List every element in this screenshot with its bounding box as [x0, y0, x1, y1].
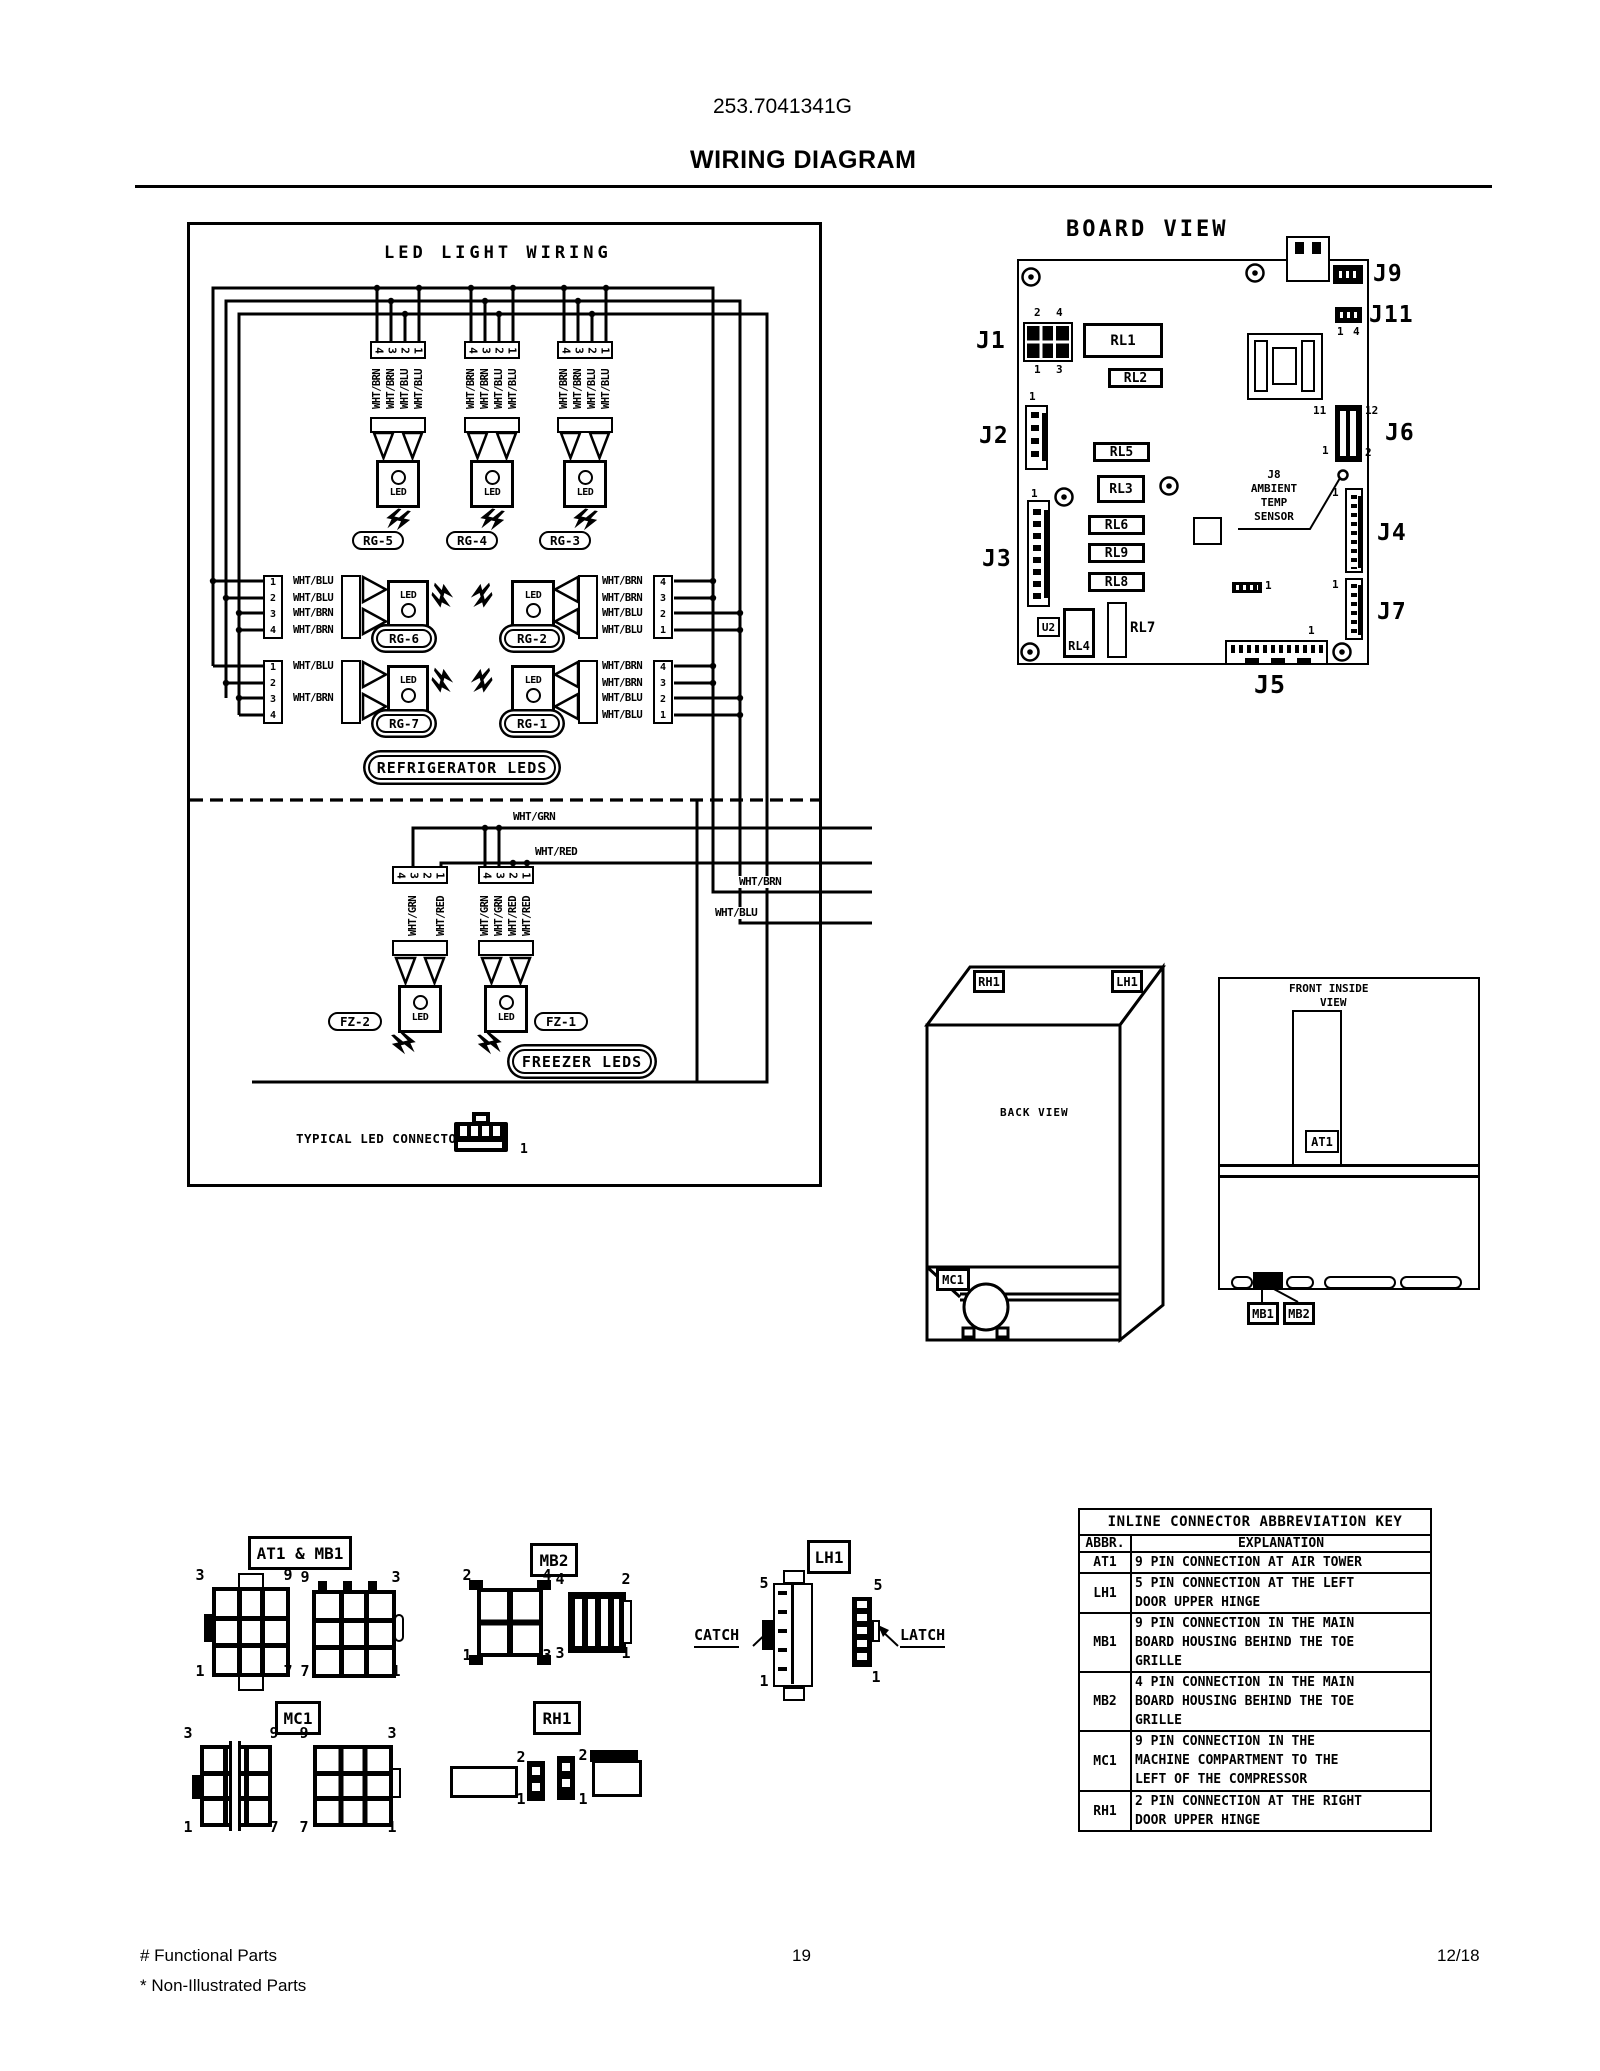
pin-number: 5: [756, 1574, 772, 1592]
at1-location-label: AT1: [1305, 1130, 1339, 1153]
rg2-connector-bar: [578, 575, 598, 639]
connector-tab: [783, 1687, 805, 1701]
wire-label: WHT/BLU: [493, 369, 505, 409]
front-inside-view-outline: [1218, 977, 1480, 1290]
wire-label: WHT/BLU: [601, 692, 643, 704]
catch-label: CATCH: [694, 1626, 739, 1648]
j6-pin12: 12: [1365, 404, 1378, 417]
led-lens-icon: [578, 470, 593, 485]
rg5-connector-bar: [370, 417, 426, 433]
front-view-title-line2: VIEW: [1320, 996, 1347, 1009]
pin-number: 1: [756, 1672, 772, 1690]
at1-mb1-connector-face-a: [212, 1587, 290, 1677]
key-table-title: INLINE CONNECTOR ABBREVIATION KEY: [1080, 1510, 1430, 1534]
pin-number: 1: [618, 1644, 634, 1662]
rh1-connector-a: [527, 1761, 545, 1801]
j1-pin3: 3: [1056, 363, 1063, 376]
key-table-row: MB1 9 PIN CONNECTION IN THE MAIN BOARD H…: [1080, 1612, 1430, 1671]
rh1-body-a: [450, 1766, 518, 1798]
wire-label: WHT/BLU: [292, 575, 334, 587]
j7-pin1: 1: [1332, 578, 1339, 591]
abbreviation-key-table: INLINE CONNECTOR ABBREVIATION KEY ABBR. …: [1078, 1508, 1432, 1832]
fz2-pin-header: 4321: [392, 866, 448, 884]
pin-number: 1: [388, 1662, 404, 1680]
wire-label: WHT/GRN: [407, 896, 419, 936]
j11-pin4: 4: [1353, 325, 1360, 338]
connector-tab: [394, 1614, 404, 1642]
toe-grille-slot: [1324, 1276, 1396, 1289]
rl7-relay-body: [1107, 602, 1127, 658]
rh1-connector-b: [557, 1756, 575, 1800]
wire-label: WHT/BRN: [292, 692, 334, 704]
rg3-connector-bar: [557, 417, 613, 433]
j3-pin1: 1: [1031, 487, 1038, 500]
rl6-relay: RL6: [1088, 515, 1145, 535]
model-number: 253.7041341G: [713, 95, 852, 119]
wire-label: WHT/BLU: [600, 369, 612, 409]
led-connector-icon: [450, 1110, 514, 1158]
rg4-led: LED: [470, 460, 514, 508]
led-lens-icon: [485, 470, 500, 485]
fz2-led: LED: [398, 985, 442, 1033]
front-view-divider-bottom: [1218, 1175, 1480, 1178]
j1-connector: [1023, 322, 1073, 362]
rl1-relay: RL1: [1083, 323, 1163, 358]
j6-pin1: 1: [1322, 444, 1329, 457]
wire-label: WHT/BRN: [601, 660, 643, 672]
connector-tab: [783, 1570, 805, 1584]
pin-number: 1: [575, 1790, 591, 1808]
bus-label-wht-grn: WHT/GRN: [512, 811, 556, 823]
board-view-title: BOARD VIEW: [1066, 217, 1228, 242]
rl8-relay: RL8: [1088, 572, 1145, 592]
pin-number: 9: [266, 1724, 282, 1742]
led-lens-icon: [401, 688, 416, 703]
pin-number: 3: [552, 1644, 568, 1662]
rg5-pin-header: 4321: [370, 341, 426, 359]
back-view-rh1-label: RH1: [973, 970, 1005, 993]
j6-pin2: 2: [1365, 446, 1372, 459]
wire-label: WHT/BLU: [586, 369, 598, 409]
at1-mb1-figure-label: AT1 & MB1: [248, 1536, 352, 1570]
wire-label: WHT/BRN: [385, 369, 397, 409]
typical-led-connector-label: TYPICAL LED CONNECTOR: [296, 1131, 465, 1146]
lh1-catch-connector: [773, 1583, 813, 1687]
connector-tab: [192, 1775, 201, 1799]
front-view-divider-top: [1218, 1164, 1480, 1167]
j4-label: J4: [1377, 520, 1407, 546]
j1-pin1: 1: [1034, 363, 1041, 376]
wire-label: WHT/BRN: [292, 607, 334, 619]
rl9-relay: RL9: [1088, 543, 1145, 563]
pin-number: 2: [618, 1570, 634, 1588]
mb1-location-label: MB1: [1247, 1302, 1279, 1325]
rg2-pin-connector: 4321: [653, 575, 673, 639]
back-view-mc1-label: MC1: [936, 1268, 970, 1291]
rg1-label: RG-1: [504, 714, 560, 733]
mb2-connector-face-a: [477, 1588, 543, 1657]
wire-label: WHT/BRN: [465, 369, 477, 409]
aux-pin-header: [1232, 582, 1262, 593]
j11-connector: [1335, 307, 1362, 323]
rl3-relay: RL3: [1097, 475, 1145, 503]
rg7-pin-connector: 1234: [263, 660, 283, 724]
pin-number: 7: [266, 1818, 282, 1836]
freezer-leds-label: FREEZER LEDS: [512, 1049, 652, 1074]
wire-label: WHT/BRN: [601, 592, 643, 604]
wire-label: WHT/BLU: [413, 369, 425, 409]
wire-label: WHT/BLU: [507, 369, 519, 409]
at1-mb1-connector-face-b: [312, 1590, 396, 1678]
rg3-led: LED: [563, 460, 607, 508]
rl5-relay: RL5: [1093, 442, 1150, 462]
connector-tab: [872, 1620, 880, 1642]
back-view-lh1-label: LH1: [1111, 970, 1143, 993]
j3-connector: [1027, 500, 1050, 607]
pin-number: 1: [513, 1790, 529, 1808]
j9-connector: [1333, 265, 1363, 284]
wire-label: WHT/BRN: [572, 369, 584, 409]
rg2-led: LED: [511, 580, 555, 628]
wire-label: WHT/BLU: [601, 709, 643, 721]
led-lens-icon: [526, 688, 541, 703]
page-number: 19: [792, 1946, 811, 1966]
led-panel-title: LED LIGHT WIRING: [384, 243, 612, 263]
led-lens-icon: [413, 995, 428, 1010]
u2-component: U2: [1037, 617, 1060, 637]
pin-number: 9: [296, 1724, 312, 1742]
connector-tab: [622, 1600, 632, 1644]
toe-grille-slot: [1231, 1276, 1253, 1289]
toe-grille-slot: [1286, 1276, 1314, 1289]
wire-label: WHT/BLU: [601, 607, 643, 619]
pin-number: 7: [297, 1662, 313, 1680]
rg7-led: LED: [387, 665, 429, 713]
rg7-label: RG-7: [376, 714, 432, 733]
wire-label: WHT/RED: [435, 896, 447, 936]
typical-connector-pin-number: 1: [520, 1142, 528, 1157]
rl4-relay: RL4: [1063, 608, 1095, 658]
pin-number: 3: [384, 1724, 400, 1742]
pin-number: 7: [280, 1662, 296, 1680]
wire-label: WHT/BLU: [399, 369, 411, 409]
key-table-row: LH1 5 PIN CONNECTION AT THE LEFT DOOR UP…: [1080, 1572, 1430, 1612]
toe-grille-slot: [1400, 1276, 1462, 1289]
wire-label: WHT/RED: [507, 896, 519, 936]
fz1-connector-bar: [478, 940, 534, 956]
control-board-outline: [1017, 259, 1369, 665]
pin-number: 1: [384, 1818, 400, 1836]
j9-label: J9: [1373, 261, 1403, 287]
wire-label: WHT/RED: [521, 896, 533, 936]
title-rule: [135, 185, 1492, 188]
wire-label: WHT/BLU: [292, 660, 334, 672]
pin-number: 1: [868, 1668, 884, 1686]
ic-component: [1193, 517, 1222, 545]
j1-pin2: 2: [1034, 306, 1041, 319]
j2-label: J2: [979, 423, 1009, 449]
compressor-icon: [964, 1284, 1008, 1330]
rg4-connector-bar: [464, 417, 520, 433]
rg3-label: RG-3: [539, 531, 591, 550]
pin-number: 9: [297, 1568, 313, 1586]
relay-component: [1247, 333, 1323, 400]
rl7-label: RL7: [1130, 620, 1155, 636]
pin-number: 5: [870, 1576, 886, 1594]
wire-label: WHT/BLU: [601, 624, 643, 636]
fz1-pin-header: 4321: [478, 866, 534, 884]
pin-number: 2: [575, 1746, 591, 1764]
pin-number: 3: [180, 1724, 196, 1742]
j2-pin1: 1: [1029, 390, 1036, 403]
rg6-pin-connector: 1234: [263, 575, 283, 639]
pin-number: 1: [192, 1662, 208, 1680]
pin-number: 3: [192, 1566, 208, 1584]
key-table-header-row: ABBR. EXPLANATION: [1080, 1534, 1430, 1551]
wire-label: WHT/BRN: [601, 677, 643, 689]
wire-label: WHT/BRN: [558, 369, 570, 409]
j11-label: J11: [1369, 302, 1414, 328]
revision-date: 12/18: [1437, 1946, 1480, 1966]
j2-connector: [1025, 405, 1048, 470]
wire-label: WHT/BRN: [371, 369, 383, 409]
j1-pin4: 4: [1056, 306, 1063, 319]
rg3-pin-header: 4321: [557, 341, 613, 359]
mb2-location-label: MB2: [1283, 1302, 1315, 1325]
rg1-connector-bar: [578, 660, 598, 724]
rg6-led: LED: [387, 580, 429, 628]
wire-label: WHT/GRN: [479, 896, 491, 936]
pin-number: 4: [552, 1570, 568, 1588]
page-title: WIRING DIAGRAM: [690, 146, 916, 175]
footnote-functional: # Functional Parts: [140, 1946, 277, 1966]
key-table-row: RH1 2 PIN CONNECTION AT THE RIGHT DOOR U…: [1080, 1790, 1430, 1830]
bus-label-wht-blu: WHT/BLU: [714, 907, 758, 919]
rl2-relay: RL2: [1108, 368, 1163, 388]
connector-tab: [762, 1620, 773, 1650]
pin-number: 1: [180, 1818, 196, 1836]
wire-label: WHT/BRN: [292, 624, 334, 636]
j3-label: J3: [982, 546, 1012, 572]
key-table-row: AT1 9 PIN CONNECTION AT AIR TOWER: [1080, 1551, 1430, 1572]
transformer-component: [1286, 236, 1330, 282]
rg4-label: RG-4: [446, 531, 498, 550]
rg6-connector-bar: [341, 575, 361, 639]
connector-tab: [238, 1675, 264, 1691]
j1-label: J1: [976, 328, 1006, 354]
fz2-connector-bar: [392, 940, 448, 956]
front-view-title-line1: FRONT INSIDE: [1289, 982, 1368, 995]
wire-label: WHT/BRN: [601, 575, 643, 587]
j5-connector: [1225, 640, 1328, 665]
lh1-latch-connector: [852, 1597, 872, 1667]
pin-number: 7: [296, 1818, 312, 1836]
rh1-body-b: [592, 1760, 642, 1797]
led-lens-icon: [391, 470, 406, 485]
aux-pin1: 1: [1265, 579, 1272, 592]
latch-label: LATCH: [900, 1626, 945, 1648]
refrigerator-leds-label: REFRIGERATOR LEDS: [368, 755, 556, 780]
rg7-connector-bar: [341, 660, 361, 724]
led-lens-icon: [401, 603, 416, 618]
mc1-connector-face-b: [313, 1745, 393, 1827]
j5-pin1: 1: [1308, 624, 1315, 637]
wire-label: WHT/BRN: [479, 369, 491, 409]
lh1-figure-label: LH1: [807, 1540, 851, 1574]
key-table-row: MB2 4 PIN CONNECTION IN THE MAIN BOARD H…: [1080, 1671, 1430, 1730]
rg1-led: LED: [511, 665, 555, 713]
rg5-label: RG-5: [352, 531, 404, 550]
bus-label-wht-red: WHT/RED: [534, 846, 578, 858]
j6-pin11: 11: [1313, 404, 1326, 417]
fz1-label: FZ-1: [534, 1012, 588, 1031]
j6-connector: [1335, 405, 1362, 462]
j4-connector: [1345, 488, 1363, 573]
wire-label: WHT/GRN: [493, 896, 505, 936]
rg1-pin-connector: 4321: [653, 660, 673, 724]
footnote-non-illustrated: * Non-Illustrated Parts: [140, 1976, 306, 1996]
wire-label: WHT/BLU: [292, 592, 334, 604]
led-lens-icon: [526, 603, 541, 618]
j5-label: J5: [1254, 670, 1286, 699]
rg2-label: RG-2: [504, 629, 560, 648]
rg6-label: RG-6: [376, 629, 432, 648]
connector-channel: [229, 1741, 241, 1831]
pin-number: 9: [280, 1566, 296, 1584]
manual-page: 253.7041341G WIRING DIAGRAM LED LIGHT WI…: [0, 0, 1600, 2071]
pin-number: 3: [388, 1568, 404, 1586]
fz2-label: FZ-2: [328, 1012, 382, 1031]
j4-pin1: 1: [1332, 486, 1339, 499]
j7-label: J7: [1377, 599, 1407, 625]
grille-connector-housing: [1253, 1272, 1283, 1290]
rh1-figure-label: RH1: [533, 1701, 581, 1735]
rg5-led: LED: [376, 460, 420, 508]
rg4-pin-header: 4321: [464, 341, 520, 359]
fz1-led: LED: [484, 985, 528, 1033]
led-lens-icon: [499, 995, 514, 1010]
connector-tab: [391, 1768, 401, 1798]
bus-label-wht-brn: WHT/BRN: [738, 876, 782, 888]
j11-pin1: 1: [1337, 325, 1344, 338]
j6-label: J6: [1385, 420, 1415, 446]
j8-ambient-temp-sensor-label: J8 AMBIENT TEMP SENSOR: [1234, 468, 1314, 524]
key-table-row: MC1 9 PIN CONNECTION IN THE MACHINE COMP…: [1080, 1730, 1430, 1790]
pin-number: 1: [459, 1646, 475, 1664]
j7-connector: [1345, 578, 1363, 640]
back-view-title: BACK VIEW: [1000, 1106, 1069, 1119]
